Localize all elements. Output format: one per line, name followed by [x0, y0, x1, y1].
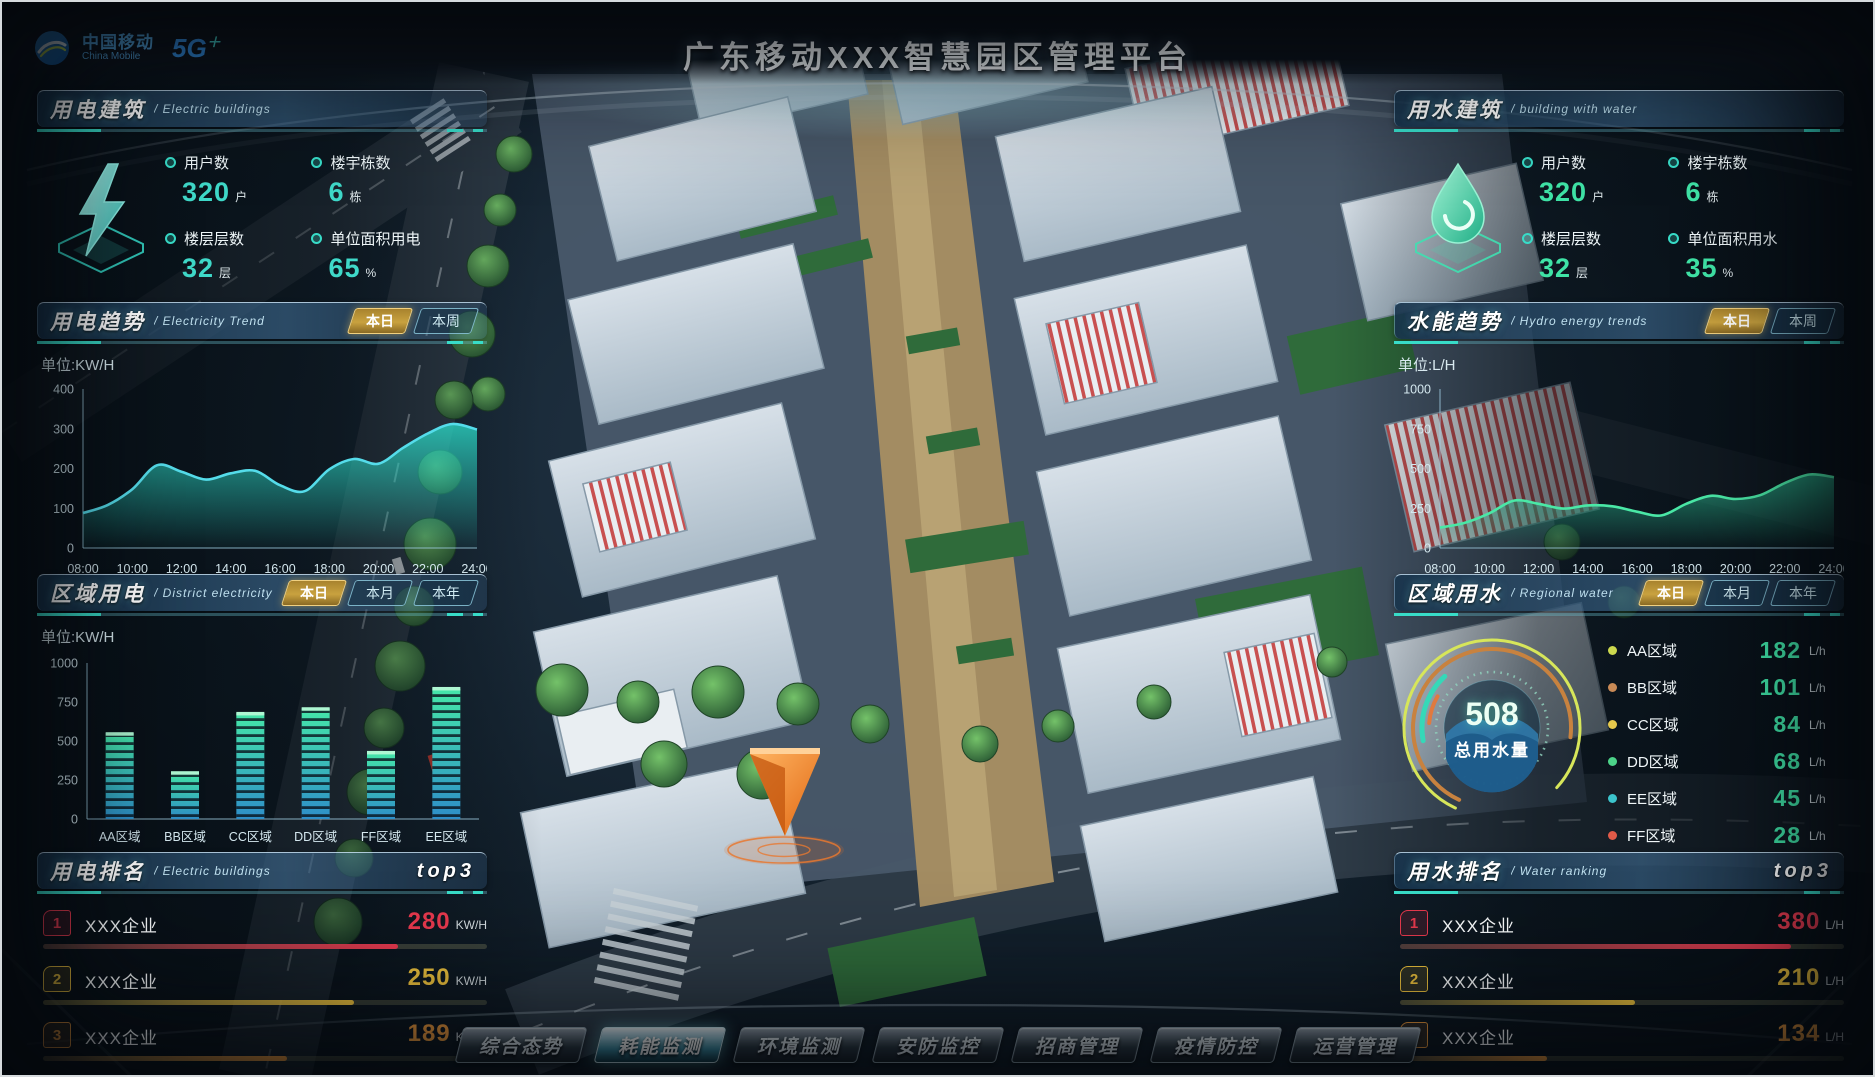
- rank-badge: 2: [43, 966, 71, 992]
- dashboard-root: 中国移动 China Mobile 5G＋ 广东移动XXX智慧园区管理平台 用电…: [0, 0, 1875, 1077]
- ranking-row: 3 XXX企业 134L/H: [1394, 1018, 1844, 1074]
- svg-text:BB区域: BB区域: [164, 830, 206, 844]
- rank-unit: KW/H: [456, 974, 487, 988]
- panel-subtitle: / building with water: [1511, 102, 1637, 116]
- nav-epidemic-prevention[interactable]: 疫情防控: [1149, 1027, 1282, 1063]
- rank-bar-track: [1400, 944, 1844, 949]
- tab-year[interactable]: 本年: [1770, 580, 1836, 606]
- panel-subtitle: / Hydro energy trends: [1511, 314, 1647, 328]
- accent-line: [37, 891, 487, 894]
- panel-subtitle: / Electricity Trend: [154, 314, 265, 328]
- nav-security-monitoring[interactable]: 安防监控: [871, 1027, 1004, 1063]
- accent-line: [37, 129, 487, 132]
- legend-dot-icon: [1608, 646, 1617, 655]
- panel-electricity-trend: 用电趋势 / Electricity Trend 本日 本周 单位:KW/H 0…: [37, 302, 487, 582]
- rank-value: 380: [1777, 908, 1820, 935]
- tab-week[interactable]: 本周: [1770, 308, 1836, 334]
- rank-bar-fill: [43, 1056, 287, 1061]
- nav-operation-management[interactable]: 运营管理: [1288, 1027, 1421, 1063]
- svg-text:0: 0: [1424, 542, 1431, 556]
- svg-text:100: 100: [53, 502, 74, 516]
- ranking-row: 1 XXX企业 280KW/H: [37, 906, 487, 962]
- panel-electric-ranking: 用电排名 / Electric buildings top3 1 XXX企业 2…: [37, 852, 487, 1074]
- stat-dot-icon: [1522, 157, 1533, 168]
- bottom-nav: 综合态势 耗能监测 环境监测 安防监控 招商管理 疫情防控 运营管理: [459, 1027, 1417, 1063]
- company-name: XXX企业: [1442, 1024, 1515, 1049]
- svg-text:AA区域: AA区域: [99, 830, 141, 844]
- ranking-row: 2 XXX企业 250KW/H: [37, 962, 487, 1018]
- legend-row: CC区域84L/h: [1608, 706, 1844, 743]
- rank-value: 134: [1777, 1020, 1820, 1047]
- rank-value: 280: [408, 908, 451, 935]
- rank-unit: L/H: [1825, 918, 1844, 932]
- svg-text:500: 500: [1410, 462, 1431, 476]
- rank-badge: 1: [43, 910, 71, 936]
- svg-text:500: 500: [57, 735, 78, 749]
- company-name: XXX企业: [85, 968, 158, 993]
- panel-header: 用电建筑 / Electric buildings: [37, 90, 487, 127]
- panel-subtitle: / Water ranking: [1511, 864, 1607, 878]
- company-name: XXX企业: [1442, 968, 1515, 993]
- legend-row: AA区域182L/h: [1608, 632, 1844, 669]
- legend-dot-icon: [1608, 683, 1617, 692]
- water-drop-icon: [1394, 146, 1522, 284]
- stat-buildings: 楼宇栋数 6栋: [311, 152, 487, 208]
- panel-electric-building: 用电建筑 / Electric buildings 用户数 320户 楼宇栋数: [37, 90, 487, 284]
- panel-water-ranking: 用水排名 / Water ranking top3 1 XXX企业 380L/H…: [1394, 852, 1844, 1074]
- svg-text:CC区域: CC区域: [229, 830, 272, 844]
- company-name: XXX企业: [85, 912, 158, 937]
- panel-header: 区域用电 / District electricity 本日 本月 本年: [37, 574, 487, 611]
- accent-line: [1394, 129, 1844, 132]
- panel-header: 用水排名 / Water ranking top3: [1394, 852, 1844, 889]
- panel-header: 用电排名 / Electric buildings top3: [37, 852, 487, 889]
- lightning-icon: [37, 146, 165, 284]
- page-title: 广东移动XXX智慧园区管理平台: [2, 32, 1873, 77]
- rank-bar-fill: [43, 944, 398, 949]
- svg-text:250: 250: [1410, 502, 1431, 516]
- panel-header: 区域用水 / Regional water 本日 本月 本年: [1394, 574, 1844, 611]
- panel-title: 水能趋势: [1407, 306, 1503, 336]
- panel-title: 用电排名: [50, 856, 146, 886]
- tab-week[interactable]: 本周: [413, 308, 479, 334]
- hydro-trend-chart: 0250500750100008:0010:0012:0014:0016:001…: [1394, 377, 1844, 582]
- tab-today[interactable]: 本日: [347, 308, 413, 334]
- top3-badge: top3: [417, 860, 475, 883]
- stat-floors: 楼层层数 32层: [1522, 228, 1662, 284]
- nav-energy-monitoring[interactable]: 耗能监测: [593, 1027, 726, 1063]
- nav-investment-management[interactable]: 招商管理: [1010, 1027, 1143, 1063]
- electricity-trend-chart: 010020030040008:0010:0012:0014:0016:0018…: [37, 377, 487, 582]
- company-name: XXX企业: [85, 1024, 158, 1049]
- rank-bar-track: [43, 1056, 487, 1061]
- panel-subtitle: / Regional water: [1511, 586, 1614, 600]
- tab-year[interactable]: 本年: [413, 580, 479, 606]
- rank-value: 189: [408, 1020, 451, 1047]
- rank-badge: 1: [1400, 910, 1428, 936]
- rank-badge: 3: [43, 1022, 71, 1048]
- rank-unit: KW/H: [456, 918, 487, 932]
- tab-today[interactable]: 本日: [1638, 580, 1704, 606]
- water-legend: AA区域182L/h BB区域101L/h CC区域84L/h DD区域68L/…: [1590, 630, 1844, 854]
- legend-dot-icon: [1608, 720, 1617, 729]
- total-water-gauge: 508 总用水量: [1394, 630, 1590, 826]
- legend-dot-icon: [1608, 757, 1617, 766]
- chart-unit-label: 单位:KW/H: [41, 626, 487, 647]
- stat-users: 用户数 320户: [1522, 152, 1662, 208]
- accent-line: [1394, 891, 1844, 894]
- rank-bar-track: [1400, 1056, 1844, 1061]
- panel-title: 用电建筑: [50, 94, 146, 124]
- chart-unit-label: 单位:L/H: [1398, 354, 1844, 375]
- rank-bar-fill: [1400, 944, 1791, 949]
- accent-line: [1394, 613, 1844, 616]
- panel-title: 用水建筑: [1407, 94, 1503, 124]
- rank-bar-track: [43, 944, 487, 949]
- accent-line: [1394, 341, 1844, 344]
- top3-badge: top3: [1774, 860, 1832, 883]
- panel-subtitle: / Electric buildings: [154, 864, 271, 878]
- panel-title: 区域用电: [50, 578, 146, 608]
- stat-dot-icon: [311, 157, 322, 168]
- legend-row: EE区域45L/h: [1608, 780, 1844, 817]
- panel-hydro-trend: 水能趋势 / Hydro energy trends 本日 本周 单位:L/H …: [1394, 302, 1844, 582]
- panel-title: 区域用水: [1407, 578, 1503, 608]
- panel-header: 用电趋势 / Electricity Trend 本日 本周: [37, 302, 487, 339]
- legend-row: DD区域68L/h: [1608, 743, 1844, 780]
- stat-dot-icon: [1522, 233, 1533, 244]
- panel-header: 水能趋势 / Hydro energy trends 本日 本周: [1394, 302, 1844, 339]
- rank-value: 210: [1777, 964, 1820, 991]
- legend-row: FF区域28L/h: [1608, 817, 1844, 854]
- stat-floors: 楼层层数 32层: [165, 228, 305, 284]
- nav-environment-monitoring[interactable]: 环境监测: [732, 1027, 865, 1063]
- svg-text:0: 0: [71, 813, 78, 827]
- district-electricity-chart: 02505007501000AA区域BB区域CC区域DD区域FF区域EE区域: [37, 649, 487, 849]
- stat-users: 用户数 320户: [165, 152, 305, 208]
- svg-text:1000: 1000: [1403, 383, 1431, 397]
- stat-buildings: 楼宇栋数 6栋: [1668, 152, 1844, 208]
- stat-unit-area-electricity: 单位面积用电 65%: [311, 228, 487, 284]
- svg-text:200: 200: [53, 462, 74, 476]
- svg-text:250: 250: [57, 774, 78, 788]
- svg-text:750: 750: [1410, 422, 1431, 436]
- stat-dot-icon: [311, 233, 322, 244]
- panel-title: 用水排名: [1407, 856, 1503, 886]
- panel-header: 用水建筑 / building with water: [1394, 90, 1844, 127]
- rank-bar-track: [1400, 1000, 1844, 1005]
- svg-text:DD区域: DD区域: [294, 830, 337, 844]
- panel-subtitle: / Electric buildings: [154, 102, 271, 116]
- stat-dot-icon: [1668, 233, 1679, 244]
- rank-bar-fill: [43, 1000, 354, 1005]
- stat-dot-icon: [165, 157, 176, 168]
- tab-today[interactable]: 本日: [281, 580, 347, 606]
- rank-bar-fill: [1400, 1056, 1547, 1061]
- legend-dot-icon: [1608, 794, 1617, 803]
- svg-text:400: 400: [53, 383, 74, 397]
- svg-text:FF区域: FF区域: [361, 830, 401, 844]
- chart-unit-label: 单位:KW/H: [41, 354, 487, 375]
- svg-text:1000: 1000: [50, 657, 78, 671]
- legend-row: BB区域101L/h: [1608, 669, 1844, 706]
- nav-overall-situation[interactable]: 综合态势: [454, 1027, 587, 1063]
- stat-unit-area-water: 单位面积用水 35%: [1668, 228, 1844, 284]
- svg-text:750: 750: [57, 696, 78, 710]
- ranking-row: 1 XXX企业 380L/H: [1394, 906, 1844, 962]
- rank-value: 250: [408, 964, 451, 991]
- rank-badge: 2: [1400, 966, 1428, 992]
- header-band: 中国移动 China Mobile 5G＋ 广东移动XXX智慧园区管理平台: [2, 2, 1873, 84]
- tab-month[interactable]: 本月: [1704, 580, 1770, 606]
- accent-line: [37, 341, 487, 344]
- ranking-row: 2 XXX企业 210L/H: [1394, 962, 1844, 1018]
- rank-unit: L/H: [1825, 1030, 1844, 1044]
- company-name: XXX企业: [1442, 912, 1515, 937]
- panel-subtitle: / District electricity: [154, 586, 273, 600]
- panel-district-electricity: 区域用电 / District electricity 本日 本月 本年 单位:…: [37, 574, 487, 849]
- stat-dot-icon: [1668, 157, 1679, 168]
- panel-title: 用电趋势: [50, 306, 146, 336]
- legend-dot-icon: [1608, 831, 1617, 840]
- tab-today[interactable]: 本日: [1704, 308, 1770, 334]
- accent-line: [37, 613, 487, 616]
- stat-dot-icon: [165, 233, 176, 244]
- svg-text:0: 0: [67, 542, 74, 556]
- ranking-row: 3 XXX企业 189KW/H: [37, 1018, 487, 1074]
- rank-unit: L/H: [1825, 974, 1844, 988]
- panel-water-building: 用水建筑 / building with water 用户数 320户: [1394, 90, 1844, 284]
- rank-bar-track: [43, 1000, 487, 1005]
- panel-regional-water: 区域用水 / Regional water 本日 本月 本年: [1394, 574, 1844, 854]
- svg-text:EE区域: EE区域: [425, 830, 467, 844]
- svg-text:300: 300: [53, 422, 74, 436]
- rank-bar-fill: [1400, 1000, 1635, 1005]
- tab-month[interactable]: 本月: [347, 580, 413, 606]
